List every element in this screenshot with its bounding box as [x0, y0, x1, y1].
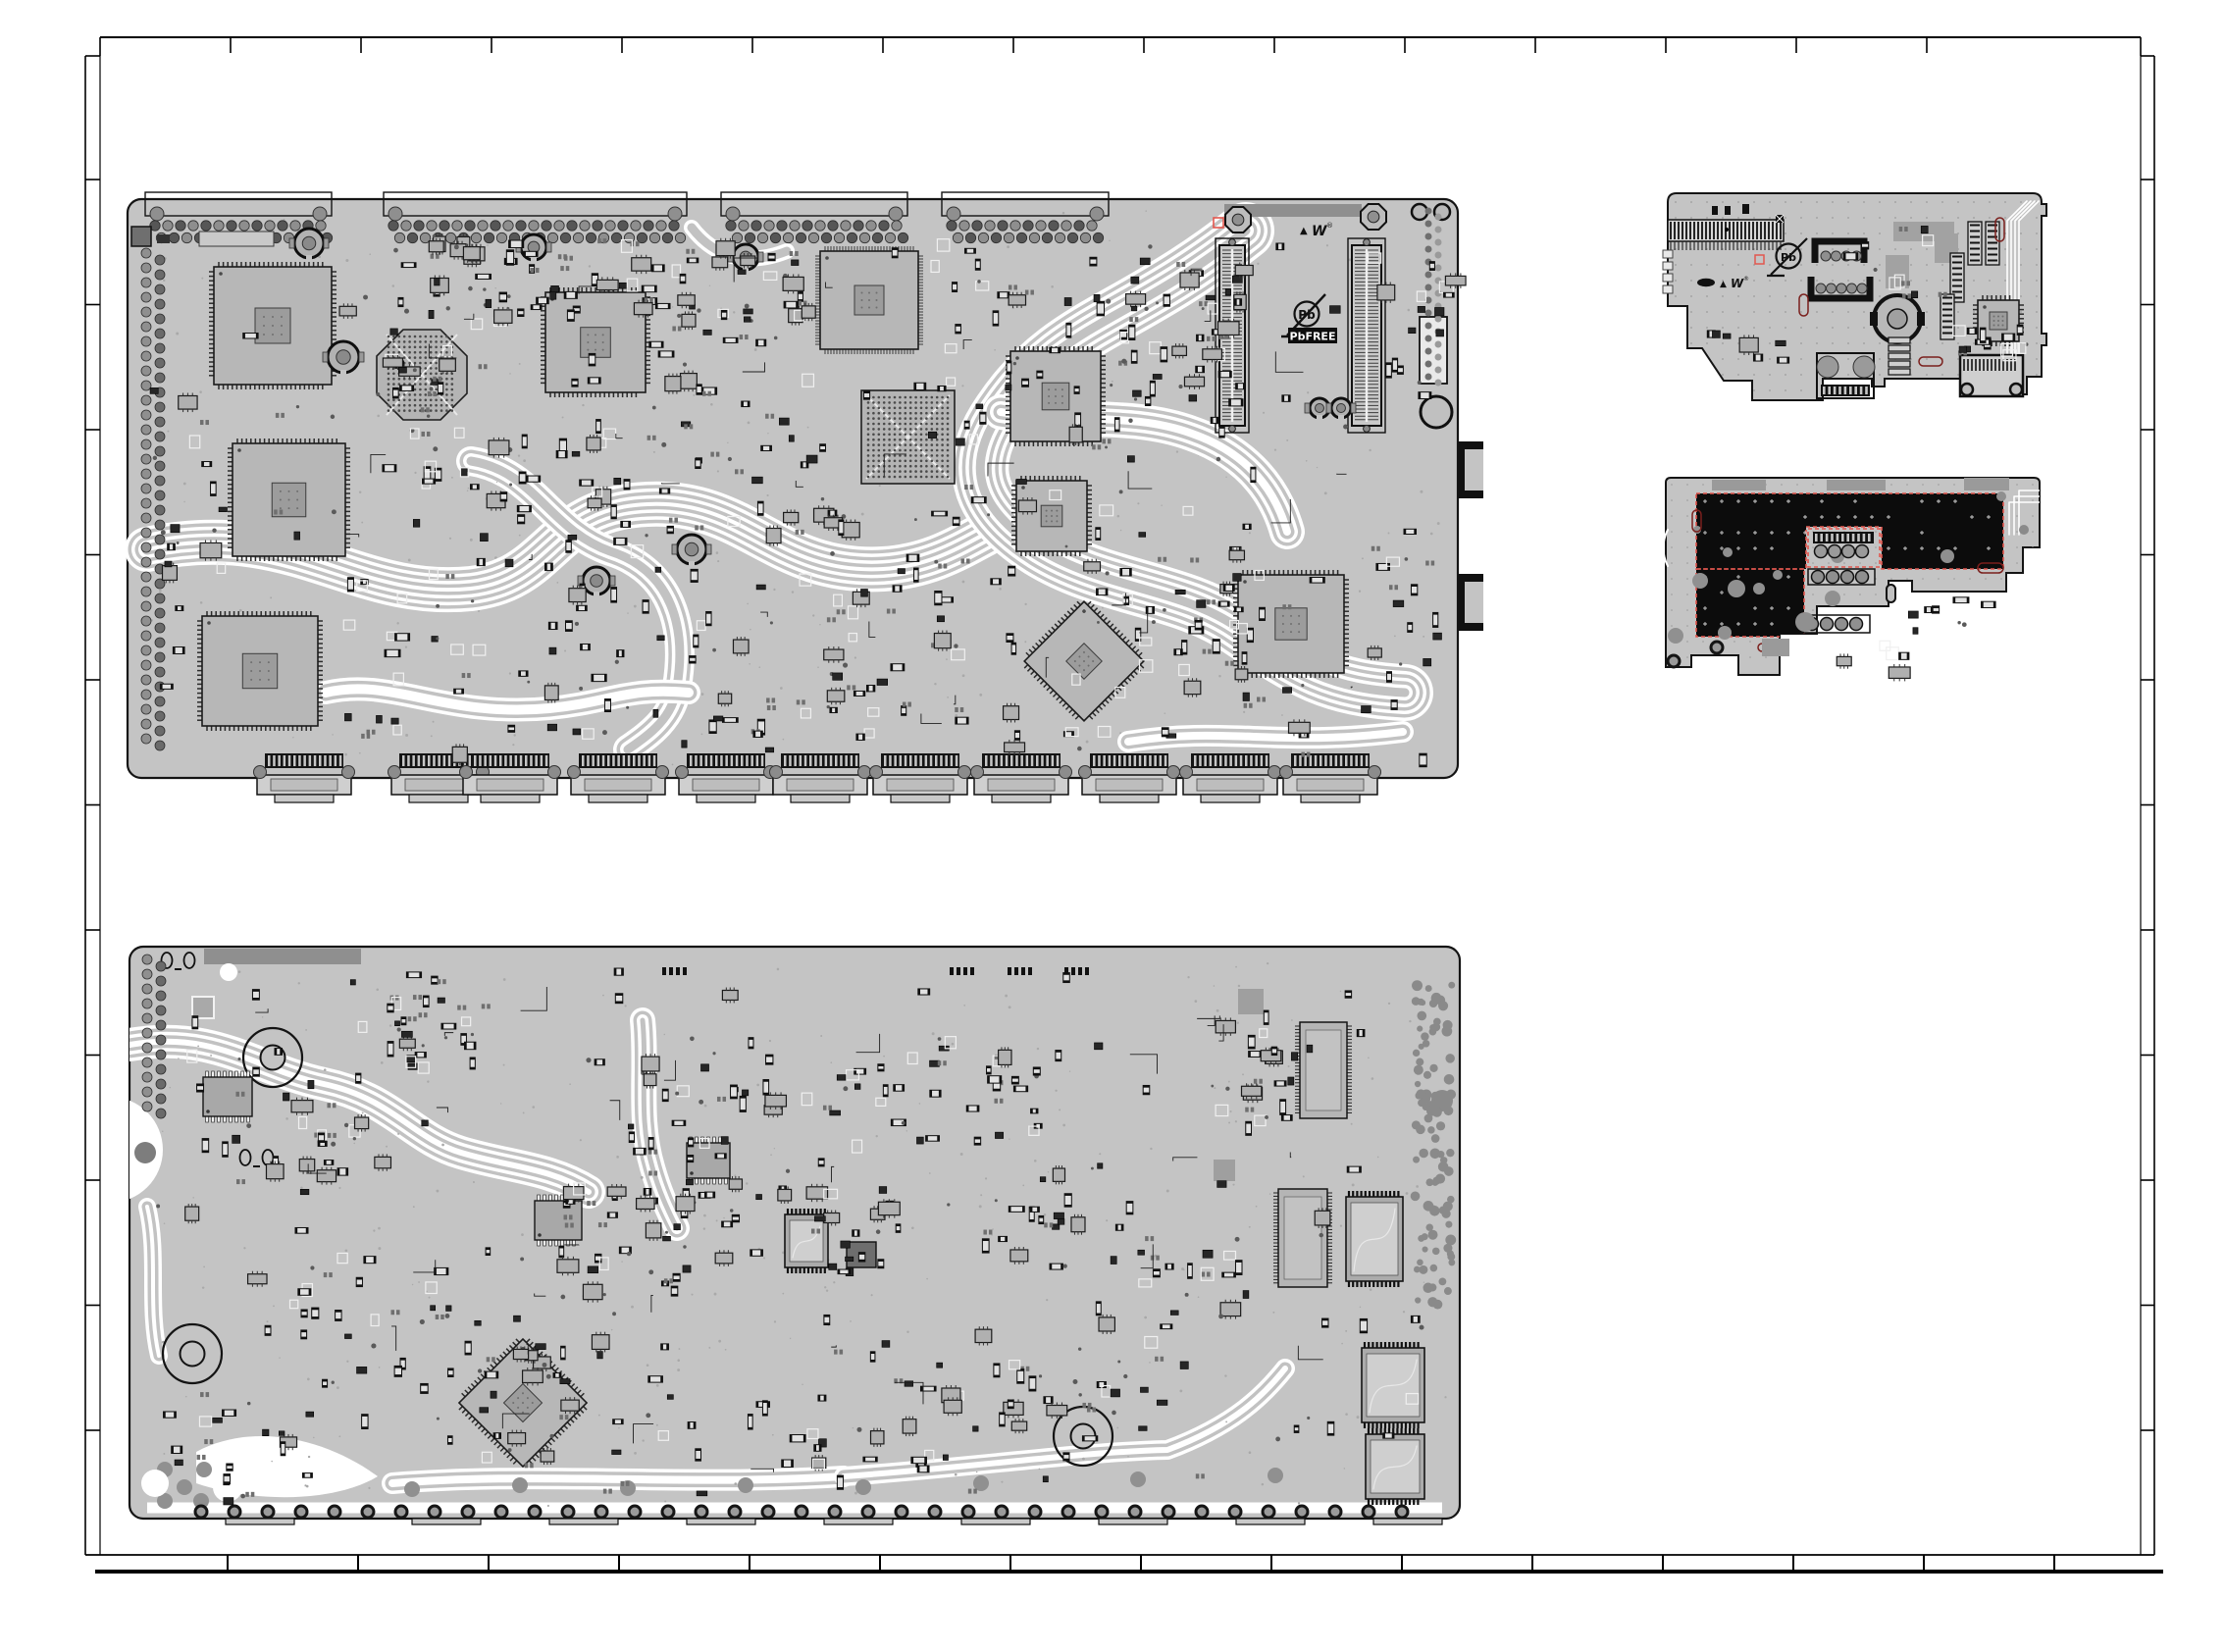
pb-free-badge: PbFREE — [1288, 328, 1337, 343]
warning-triangle-icon: ▲ — [1720, 280, 1727, 289]
drawing-page: Pb PbFREE ▲ W ® Pb ▲ W ® — [0, 0, 2225, 1652]
ul-w-glyph: W — [1312, 224, 1327, 239]
warning-triangle-icon: ▲ — [1300, 226, 1308, 236]
pcb-sub-board-bottom-view — [1664, 478, 2041, 681]
registered-icon: ® — [1743, 276, 1749, 283]
pb-free-text: PbFREE — [1290, 331, 1336, 343]
pcb-main-board-bottom-view — [57, 947, 1460, 1524]
pcb-main-board-top-view — [128, 192, 1483, 802]
ul-w-glyph: W — [1731, 277, 1744, 290]
pcb-sub-board-top-view — [1663, 193, 2046, 400]
registered-icon: ® — [1326, 222, 1333, 230]
pcb-layout-drawing: Pb PbFREE ▲ W ® Pb ▲ W ® — [0, 0, 2225, 1652]
